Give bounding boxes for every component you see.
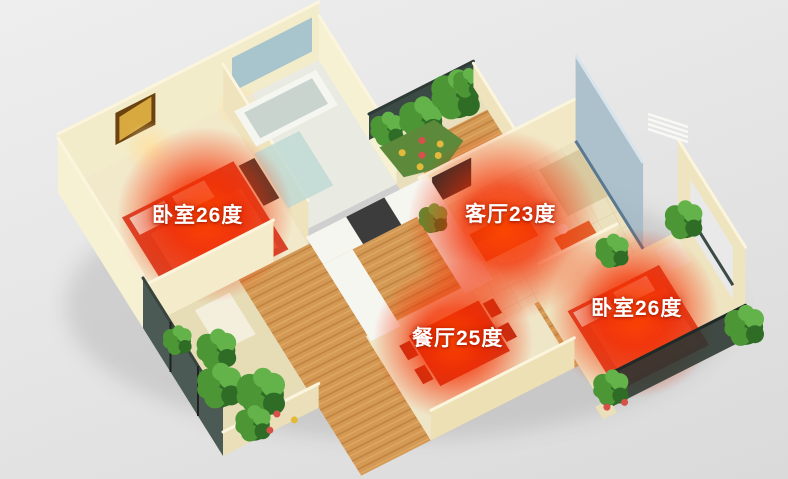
planter-plant xyxy=(607,234,621,248)
flower xyxy=(603,404,610,411)
planter-plant xyxy=(724,321,740,337)
balcony-plant xyxy=(179,340,192,353)
balcony-plant xyxy=(247,405,261,419)
balcony-plant xyxy=(163,337,175,349)
balcony-plant xyxy=(210,329,226,345)
flower xyxy=(621,399,628,406)
garden-plant xyxy=(414,96,432,114)
planter-plant xyxy=(685,220,702,237)
planter-plant xyxy=(678,200,693,215)
flower xyxy=(419,137,426,144)
balcony-plant xyxy=(212,363,230,381)
planter-plant xyxy=(596,247,610,261)
planter-plant xyxy=(738,305,754,321)
balcony-plant xyxy=(197,345,213,361)
planter-plant xyxy=(605,369,619,383)
balcony-plant xyxy=(235,419,249,433)
flower xyxy=(273,411,280,418)
balcony-plant xyxy=(197,380,215,398)
flower xyxy=(399,149,406,156)
balcony-plant xyxy=(173,325,185,337)
garden-plant xyxy=(431,89,451,109)
balcony-plant xyxy=(253,368,273,388)
garden-plant xyxy=(370,125,384,139)
apartment-temperature-render: 卧室26度 客厅23度 餐厅25度 卧室26度 xyxy=(0,0,788,479)
garden-plant xyxy=(399,114,417,132)
planter-plant xyxy=(614,251,629,266)
planter-plant xyxy=(593,384,607,398)
apartment-3d-scene xyxy=(0,0,788,479)
planter-plant xyxy=(746,325,764,343)
garden-plant xyxy=(458,94,480,116)
flower xyxy=(417,163,424,170)
flower xyxy=(419,152,426,159)
garden-plant xyxy=(453,79,465,91)
flower xyxy=(266,427,273,434)
flower xyxy=(291,416,298,423)
balcony-plant xyxy=(237,387,257,407)
flower xyxy=(437,141,444,148)
garden-plant xyxy=(463,68,475,80)
planter-plant xyxy=(665,215,680,230)
garden-plant xyxy=(382,112,396,126)
